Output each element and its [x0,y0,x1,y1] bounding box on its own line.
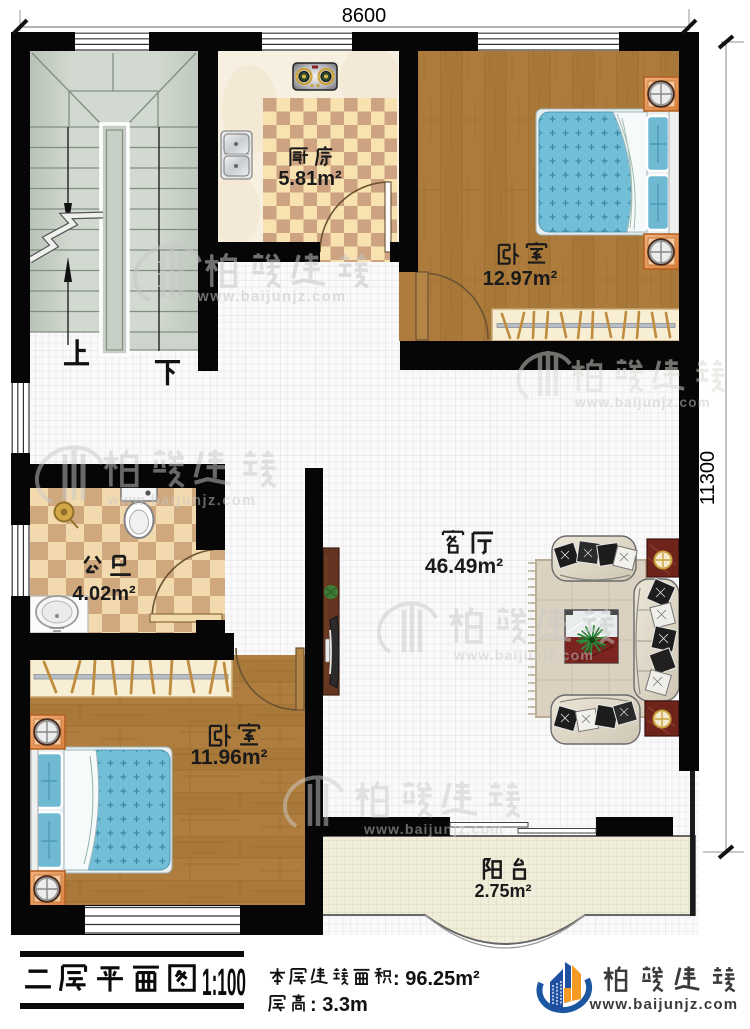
svg-text:www.baijunjz.com: www.baijunjz.com [106,493,256,509]
svg-text:www.baijunjz.com: www.baijunjz.com [363,821,504,837]
svg-text:2.75m²: 2.75m² [474,881,531,901]
svg-text:4.02m²: 4.02m² [72,583,136,605]
svg-text:www.baijunjz.com: www.baijunjz.com [574,395,711,410]
svg-text:www.baijunjz.com: www.baijunjz.com [589,996,739,1013]
svg-text:8600: 8600 [342,5,387,27]
svg-text:46.49m²: 46.49m² [425,555,503,578]
svg-text:: 96.25m²: : 96.25m² [393,968,480,990]
svg-text:5.81m²: 5.81m² [278,168,342,190]
svg-text:: 3.3m: : 3.3m [310,994,368,1016]
svg-text:11300: 11300 [697,451,719,505]
svg-text:11.96m²: 11.96m² [190,746,267,769]
svg-text:www.baijunjz.com: www.baijunjz.com [196,289,346,305]
svg-text:12.97m²: 12.97m² [483,268,558,290]
svg-text:www.baijunjz.com: www.baijunjz.com [453,647,594,663]
svg-text:1:100: 1:100 [202,962,246,1004]
